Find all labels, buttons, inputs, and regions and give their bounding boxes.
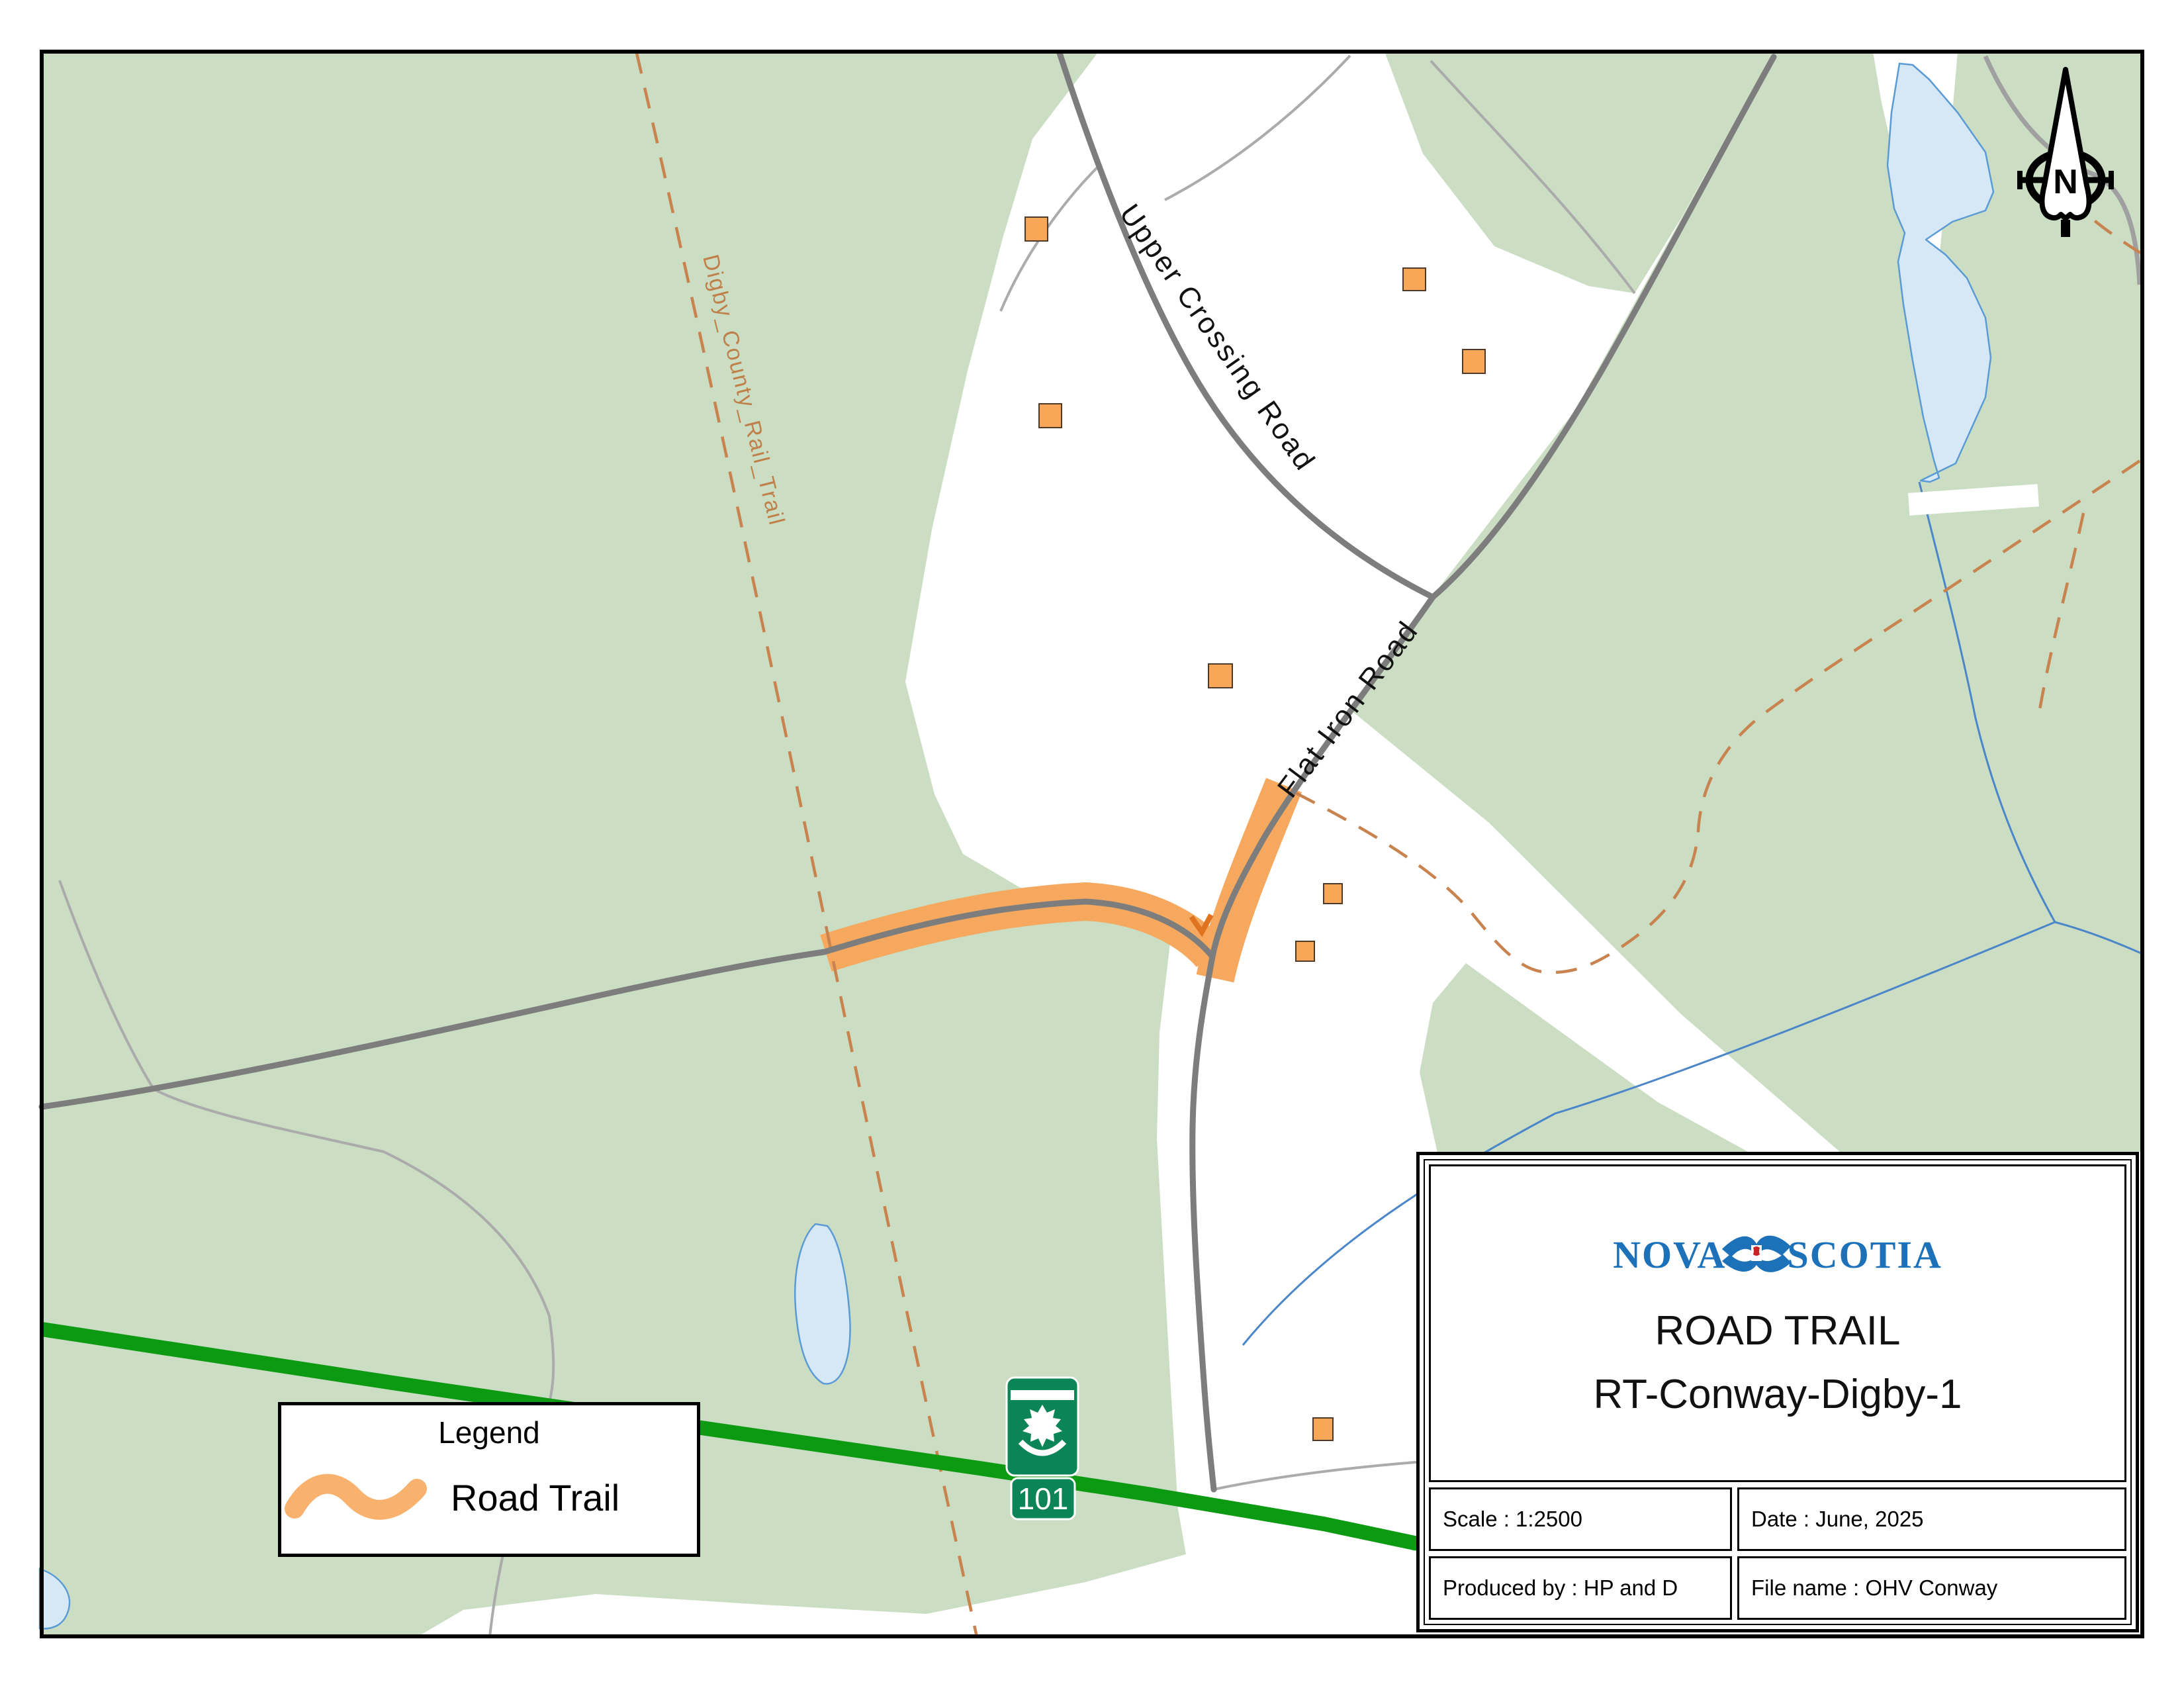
title-block-row1: Scale : 1:2500 Date : June, 2025 [1429,1487,2126,1551]
title-block: NOVA SCOTIA ROAD TRAIL RT-Conway-Digby-1… [1416,1152,2139,1632]
building-marker [1025,217,1048,241]
map-page: 101 Upper Crossing Road Flat Iron Road D… [0,0,2184,1688]
building-marker [1208,664,1232,688]
north-arrow-letter: N [2053,163,2078,201]
title-block-row2: Produced by : HP and D File name : OHV C… [1429,1556,2126,1620]
title-cell: NOVA SCOTIA ROAD TRAIL RT-Conway-Digby-1 [1429,1164,2126,1482]
legend-item-label: Road Trail [451,1476,619,1519]
map-title-line2: RT-Conway-Digby-1 [1593,1363,1962,1427]
scale-cell: Scale : 1:2500 [1429,1487,1732,1551]
logo-word-left: NOVA [1613,1233,1726,1277]
building-marker [1463,350,1485,373]
building-marker [1296,941,1314,961]
legend-item-road-trail: Road Trail [281,1468,697,1527]
filename-cell: File name : OHV Conway [1737,1556,2126,1620]
building-marker [1313,1418,1333,1440]
building-marker [1403,268,1426,291]
legend-box: Legend Road Trail [278,1402,700,1557]
logo-word-right: SCOTIA [1787,1233,1942,1277]
nova-scotia-flag-icon [1717,1227,1796,1284]
building-marker [1324,884,1342,904]
shield-route-number: 101 [1018,1481,1069,1516]
produced-cell: Produced by : HP and D [1429,1556,1732,1620]
legend-title: Legend [281,1415,697,1450]
nova-scotia-logo: NOVA SCOTIA [1613,1220,1942,1277]
map-title-line1: ROAD TRAIL [1655,1299,1901,1363]
title-block-inner: NOVA SCOTIA ROAD TRAIL RT-Conway-Digby-1… [1424,1159,2132,1625]
highway-101-shield: 101 [1007,1378,1078,1519]
date-cell: Date : June, 2025 [1737,1487,2126,1551]
shield-stripe [1011,1390,1074,1400]
road-trail-swoosh-icon [281,1468,433,1527]
building-marker [1039,404,1062,428]
